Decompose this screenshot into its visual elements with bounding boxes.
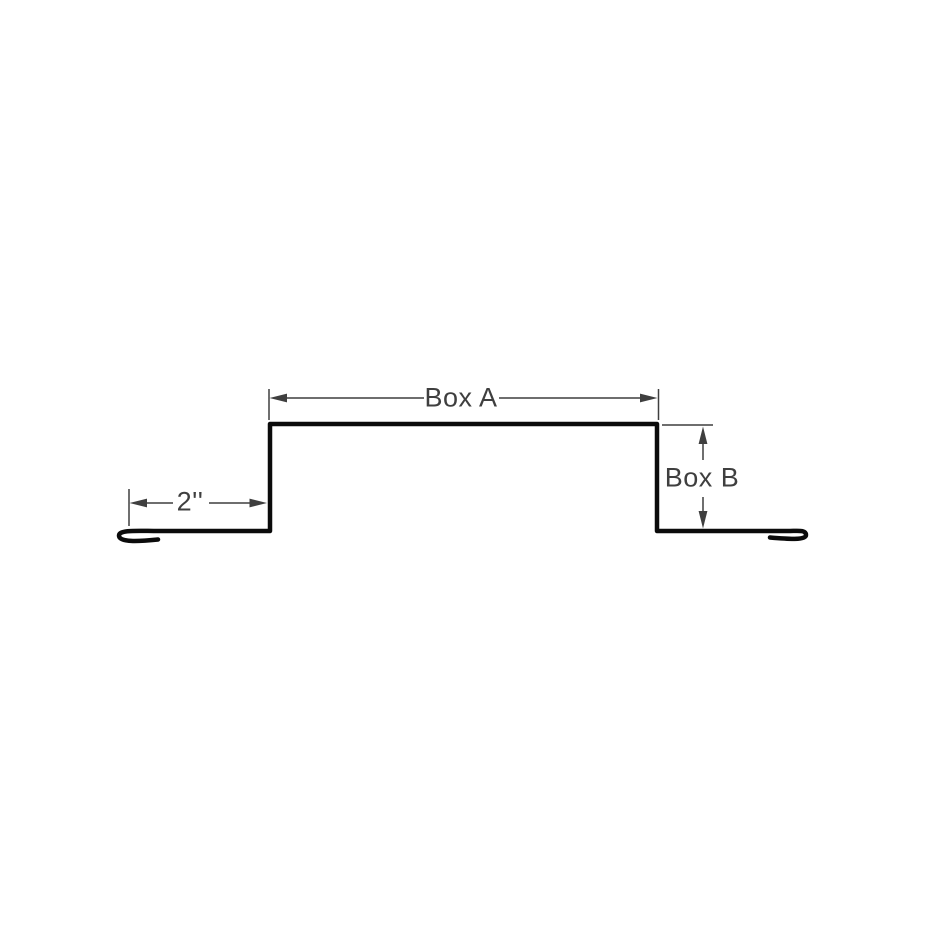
box-profile-diagram: Box A Box B 2'' [0, 0, 930, 931]
box-b-arrowhead-down-icon [699, 511, 708, 529]
box-b-arrowhead-up-icon [699, 427, 708, 445]
flange-width-label: 2'' [177, 489, 204, 516]
flange-arrowhead-left-icon [130, 499, 148, 508]
box-b-label: Box B [665, 465, 740, 492]
box-a-arrowhead-left-icon [270, 394, 288, 403]
box-a-label: Box A [424, 385, 497, 412]
box-a-arrowhead-right-icon [640, 394, 658, 403]
profile-drawing [0, 0, 930, 931]
flange-arrowhead-right-icon [250, 499, 268, 508]
